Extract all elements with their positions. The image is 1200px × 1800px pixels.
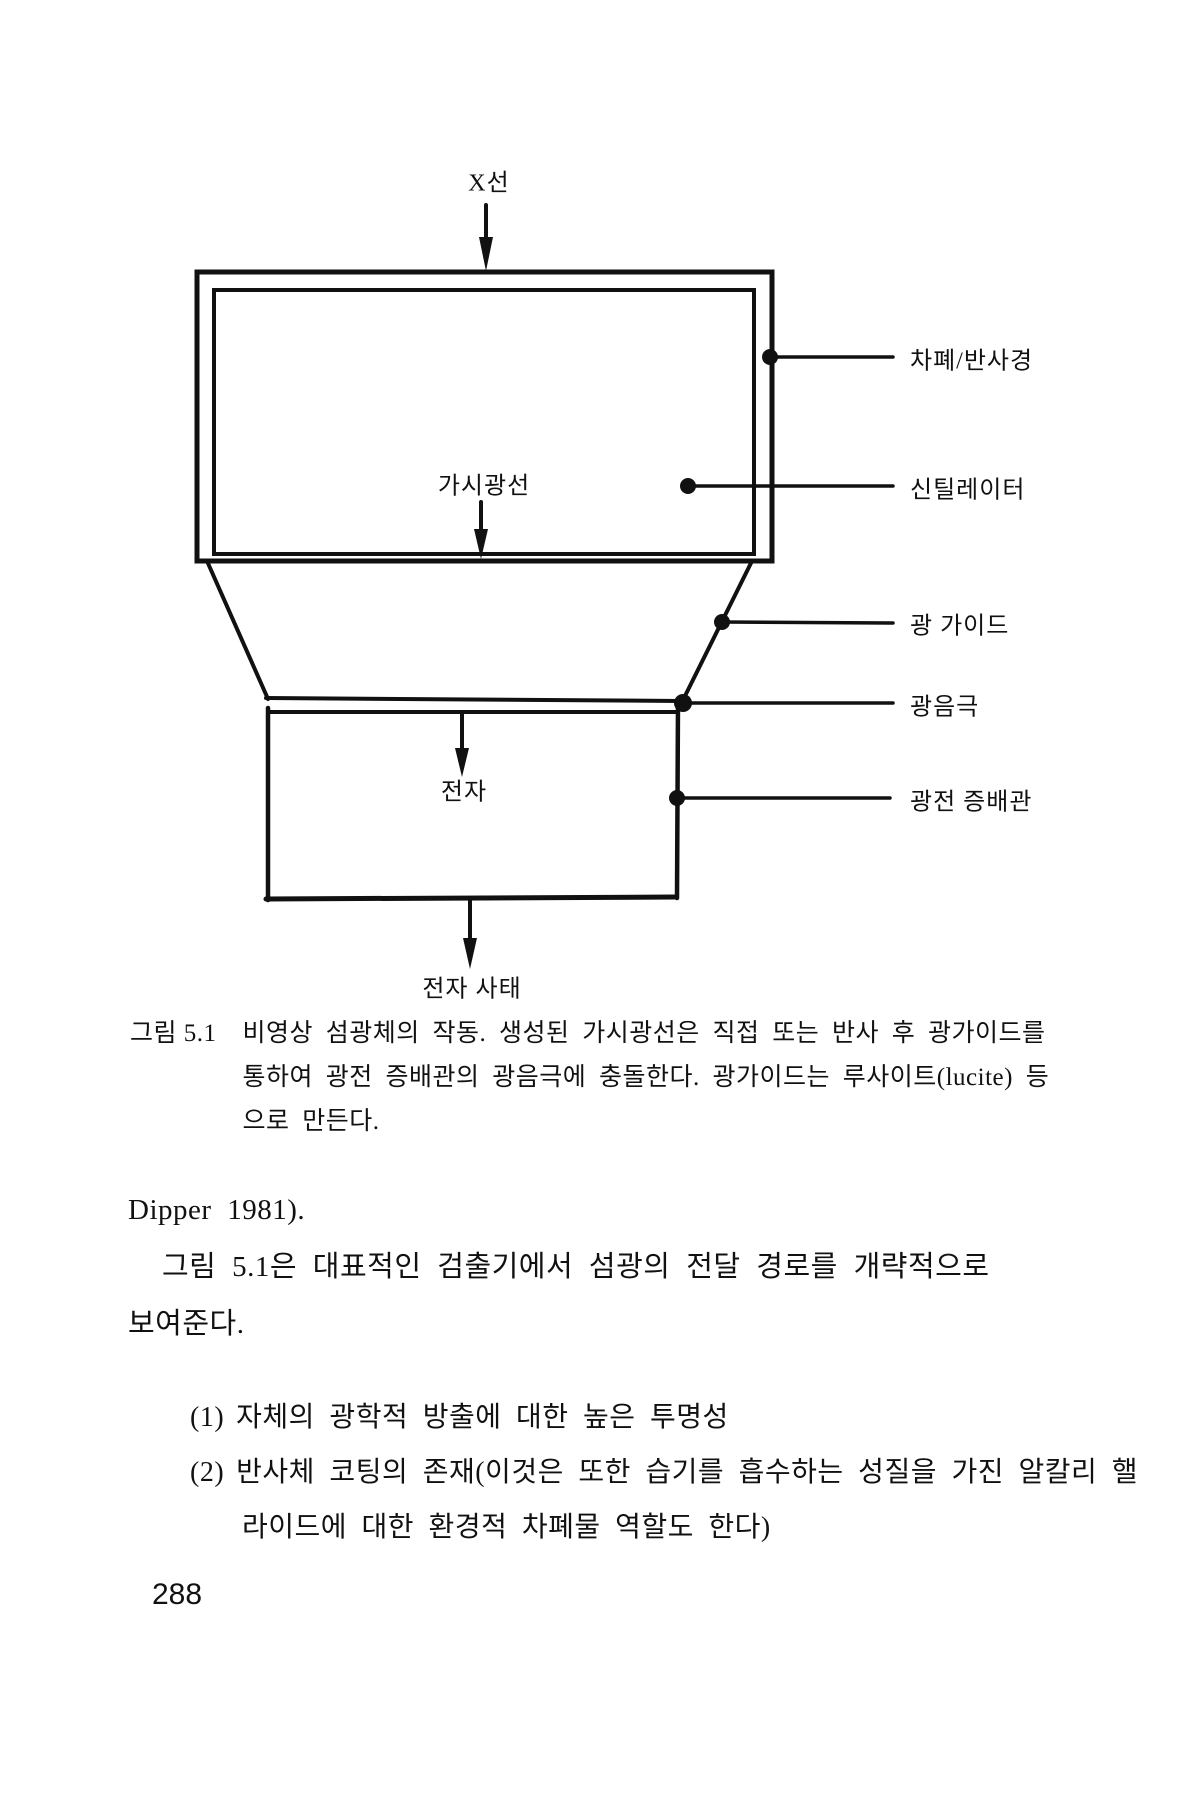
photomultiplier-label: 광전 증배관 [910, 782, 1032, 817]
shield-reflector-label: 차폐/반사경 [910, 341, 1033, 376]
pmt-bottom-edge [266, 897, 676, 899]
figure-caption: 그림 5.1 비영상 섬광체의 작동. 생성된 가시광선은 직접 또는 반사 후… [130, 1012, 1090, 1144]
photocathode-line [266, 698, 681, 701]
electron-avalanche-label: 전자 사태 [422, 969, 521, 1004]
avalanche-arrowhead [463, 938, 477, 969]
shield-outer-rect [197, 272, 772, 561]
figure-caption-text: 비영상 섬광체의 작동. 생성된 가시광선은 직접 또는 반사 후 광가이드를 … [243, 1012, 1090, 1144]
photocathode-callout-dot [674, 694, 692, 712]
figure-caption-number: 그림 5.1 [130, 1012, 217, 1144]
caption-line-1: 비영상 섬광체의 작동. 생성된 가시광선은 직접 또는 반사 후 광가이드를 [243, 1012, 1090, 1056]
xray-label: X선 [468, 163, 509, 198]
light-guide-leader-line [722, 622, 893, 623]
body-paragraph-2-line-1: 그림 5.1은 대표적인 검출기에서 섬광의 전달 경로를 개략적으로 [128, 1239, 1078, 1296]
scintillator-inner-rect [214, 290, 754, 554]
electron-label: 전자 [441, 772, 487, 807]
pmt-callout-dot [669, 790, 685, 806]
page-number: 288 [152, 1578, 202, 1612]
list-item: (2)반사체 코팅의 존재(이것은 또한 습기를 흡수하는 성질을 가진 알칼리… [190, 1445, 1090, 1500]
scintillator-label: 신틸레이터 [910, 470, 1025, 505]
light-guide-label: 광 가이드 [910, 606, 1009, 641]
list-item-text: 자체의 광학적 방출에 대한 높은 투명성 [236, 1402, 729, 1433]
list-item-text: 반사체 코팅의 존재(이것은 또한 습기를 흡수하는 성질을 가진 알칼리 핼 [236, 1457, 1138, 1488]
xray-arrowhead [479, 237, 493, 271]
list-item: (1)자체의 광학적 방출에 대한 높은 투명성 [190, 1390, 1090, 1445]
figure-5-1-diagram: X선 가시광선 전자 전자 사태 차폐/반사경 신틸레이터 광 가이드 광음극 … [0, 0, 1200, 1005]
list-item-marker: (1) [190, 1402, 224, 1433]
property-list: (1)자체의 광학적 방출에 대한 높은 투명성 (2)반사체 코팅의 존재(이… [190, 1390, 1090, 1555]
light-guide-right-edge [683, 561, 752, 700]
body-text: Dipper 1981). 그림 5.1은 대표적인 검출기에서 섬광의 전달 … [128, 1182, 1078, 1353]
caption-line-3: 으로 만든다. [243, 1100, 1090, 1144]
body-paragraph-1: Dipper 1981). [128, 1182, 1078, 1239]
book-page: X선 가시광선 전자 전자 사태 차폐/반사경 신틸레이터 광 가이드 광음극 … [0, 0, 1200, 1800]
light-guide-callout-dot [714, 614, 730, 630]
light-guide-left-edge [207, 561, 268, 699]
photocathode-label: 광음극 [910, 687, 979, 722]
list-item-continuation: 라이드에 대한 환경적 차폐물 역할도 한다) [190, 1500, 1090, 1555]
shield-callout-dot [762, 349, 778, 365]
body-paragraph-2-line-2: 보여준다. [128, 1296, 1078, 1353]
scintillator-callout-dot [680, 478, 696, 494]
caption-line-2: 통하여 광전 증배관의 광음극에 충돌한다. 광가이드는 루사이트(lucite… [243, 1056, 1090, 1100]
visible-light-label: 가시광선 [438, 466, 530, 501]
list-item-marker: (2) [190, 1457, 224, 1488]
